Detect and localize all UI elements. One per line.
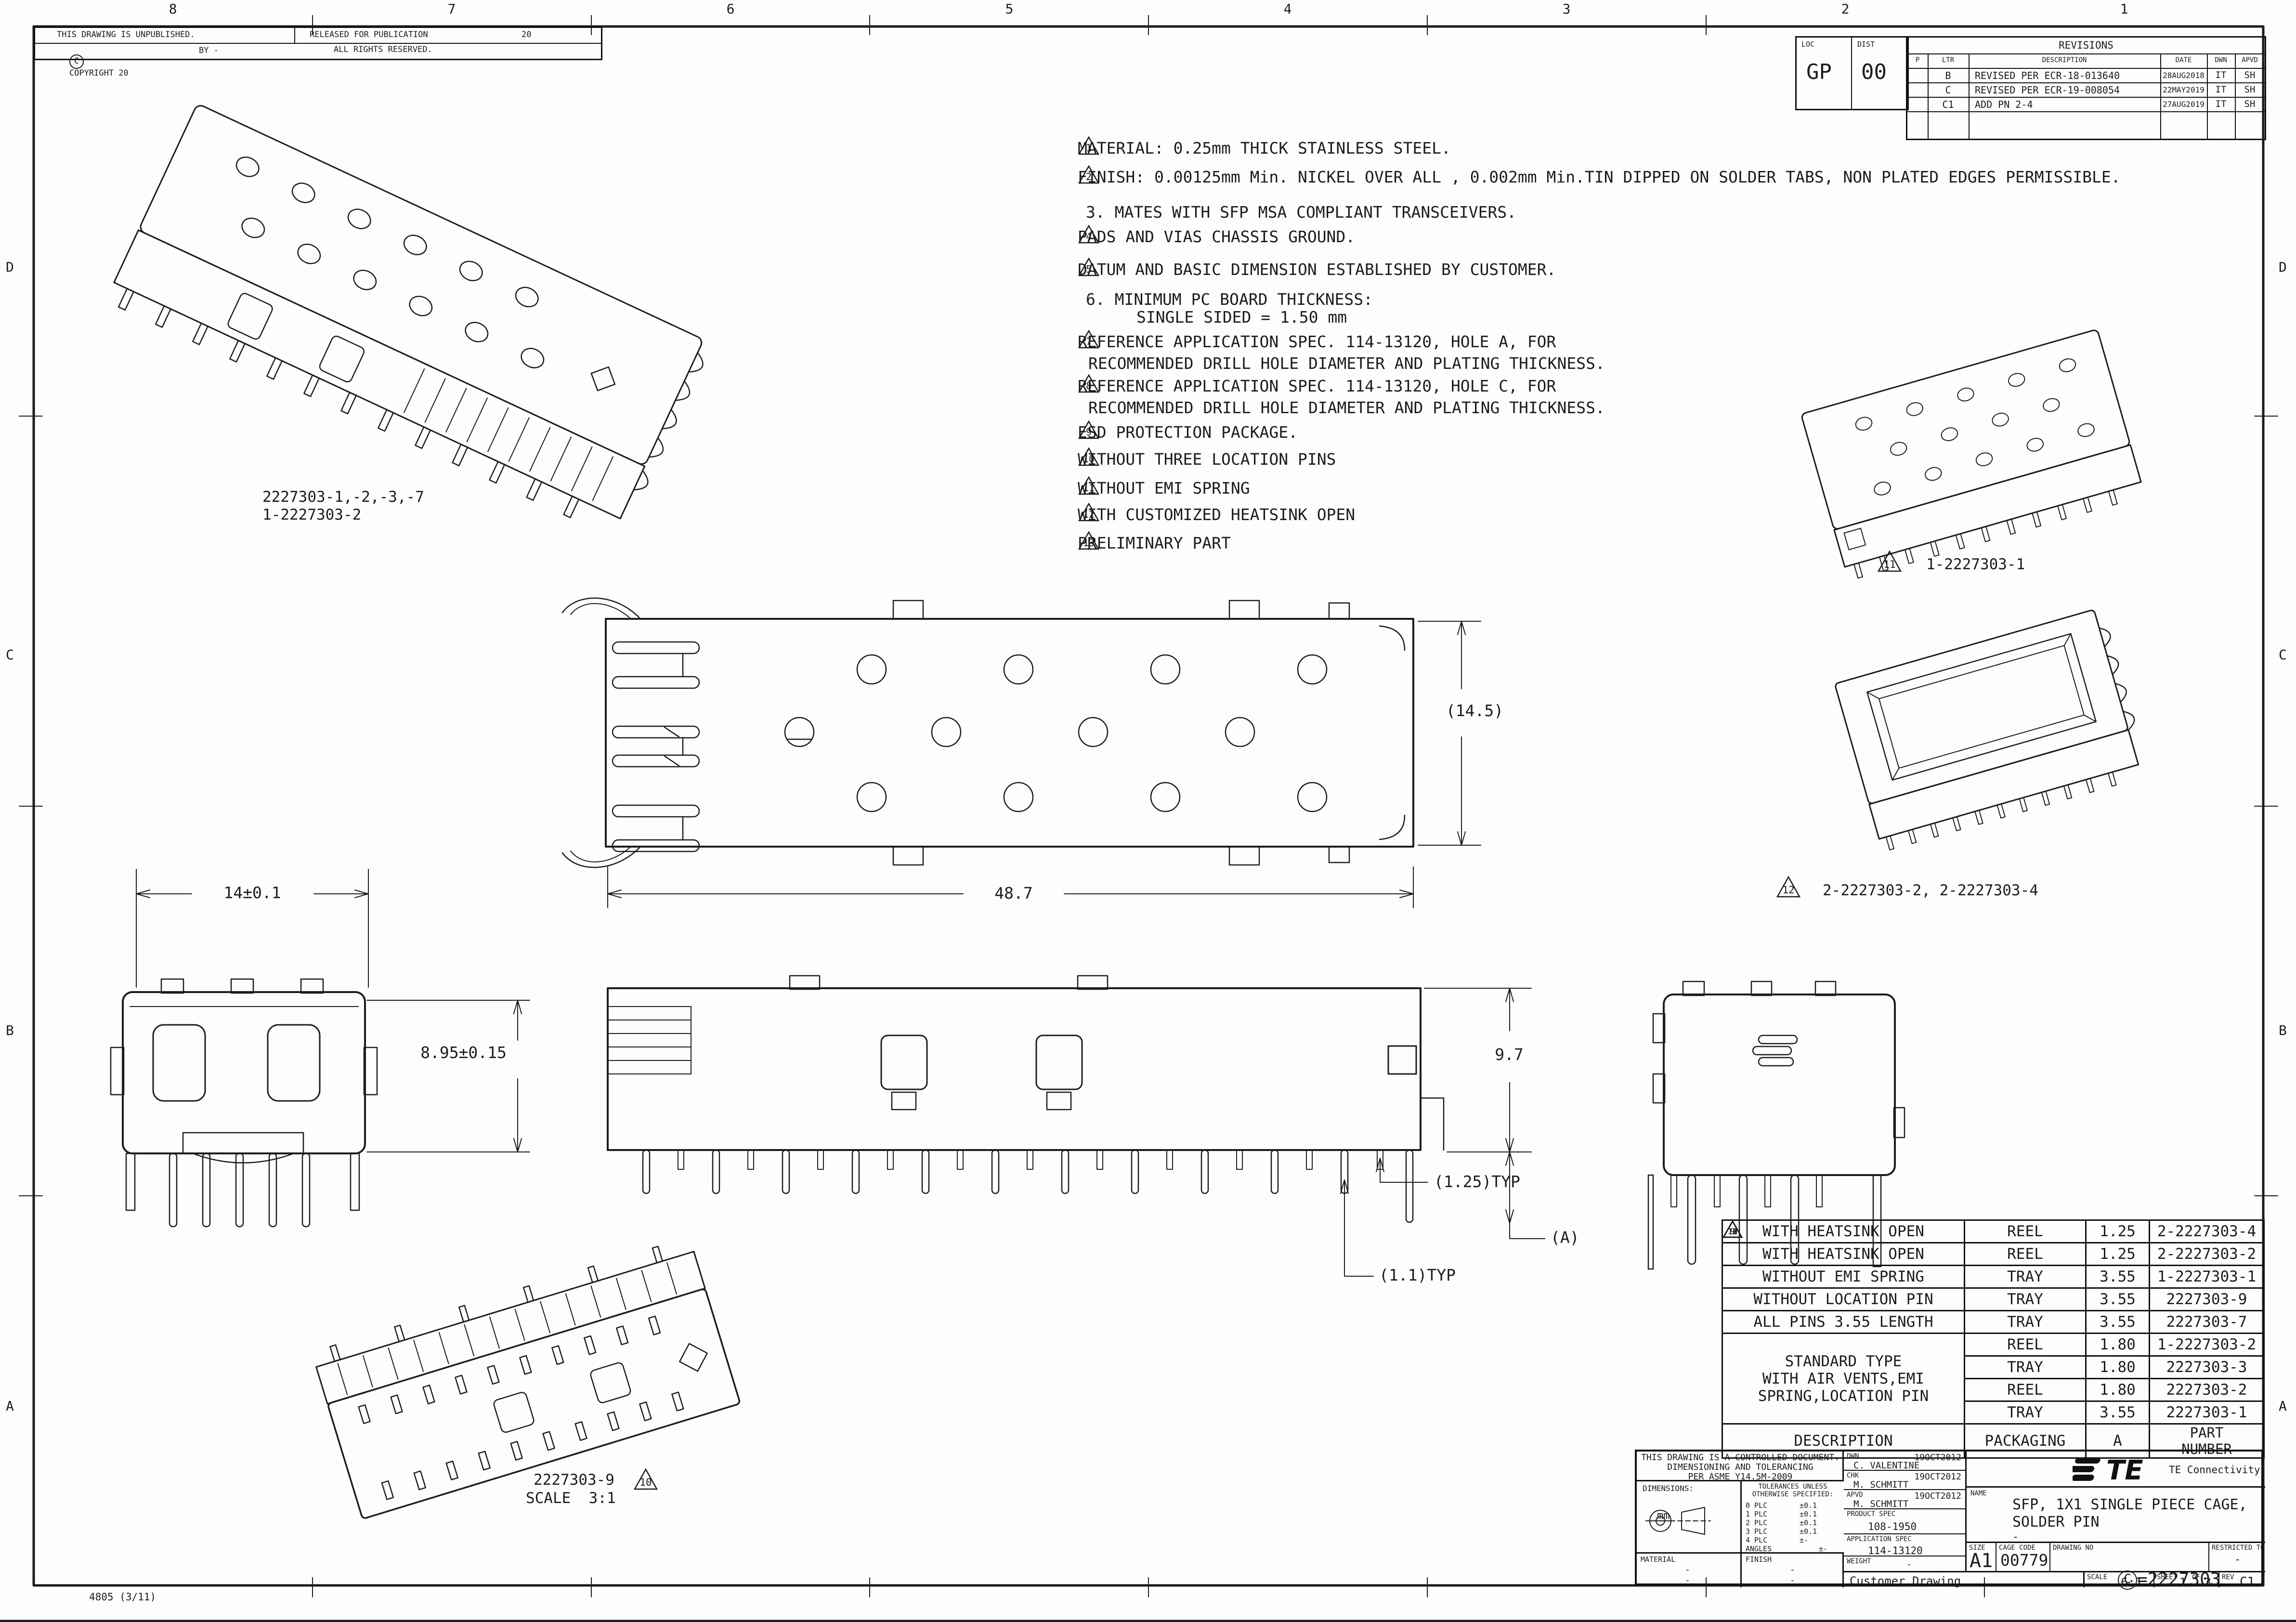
rev-row-apvd: SH	[2235, 85, 2265, 95]
part-number: 2-2227303-2	[2150, 1243, 2264, 1266]
zone-letter: D	[6, 260, 14, 275]
note-13: 13 PRELIMINARY PART	[1078, 531, 1231, 552]
rev-row-ltr: C1	[1928, 99, 1969, 110]
dim-side-height-text: 9.7	[1482, 1046, 1536, 1063]
dim-side-height-9-7	[1424, 988, 1531, 1152]
sheet-box: SHEET 1 OF 3	[2154, 1571, 2219, 1587]
parts-row: WITH HEATSINK OPEN 12REEL 1.25 2-2227303…	[1722, 1220, 2264, 1243]
part-number: 2227303-1	[2150, 1401, 2264, 1424]
part-number: 2227303-7	[2150, 1311, 2264, 1334]
part-dim-a: 1.80	[2086, 1379, 2150, 1401]
part-packaging: 10TRAY	[1965, 1288, 2086, 1311]
dim-depth-14-5	[1418, 621, 1481, 845]
note-8: 8 REFERENCE APPLICATION SPEC. 114-13120,…	[1078, 374, 1605, 417]
rev-row-apvd: SH	[2235, 70, 2265, 80]
flag-note-5-icon: 5	[1078, 257, 1100, 277]
unpublished-note: THIS DRAWING IS UNPUBLISHED.	[57, 30, 195, 39]
isometric-view-bottom-left	[312, 1237, 740, 1519]
flag-note-4-icon: 4	[1078, 224, 1100, 245]
note-2: 2 FINISH: 0.00125mm Min. NICKEL OVER ALL…	[1078, 165, 2121, 186]
svg-text:12: 12	[1782, 884, 1794, 896]
svg-text:11: 11	[1883, 559, 1895, 570]
svg-text:2: 2	[1086, 171, 1092, 183]
te-logo-marking	[1753, 1035, 1797, 1066]
dim-pin-pitch-text: (1.25)TYP	[1434, 1173, 1520, 1190]
zone-number: 7	[442, 2, 461, 17]
flag-note-13-icon: 13	[1078, 531, 1100, 551]
part-packaging: 9REEL	[1965, 1334, 2086, 1356]
rev-row-date: 27AUG2019	[2160, 100, 2207, 109]
part-dim-a: 3.55	[2086, 1288, 2150, 1311]
note-10: 10 WITHOUT THREE LOCATION PINS	[1078, 447, 1336, 469]
rev-row-ltr: C	[1928, 85, 1969, 95]
svg-text:1: 1	[1086, 142, 1092, 154]
dim-pin-length-text: (A)	[1551, 1229, 1579, 1246]
flag-icon: 9	[1722, 1220, 1743, 1239]
parts-row: STANDARD TYPE WITH AIR VENTS,EMI SPRING,…	[1722, 1334, 2264, 1356]
part-desc: WITHOUT LOCATION PIN	[1722, 1288, 1965, 1311]
rights-reserved: ALL RIGHTS RESERVED.	[334, 45, 432, 54]
flag-note-7-icon: 7	[1078, 329, 1100, 350]
drawing-sheet: 8 7 6 5 4 3 2 1 D C B A D C B A 4805 (3/…	[0, 0, 2296, 1622]
isometric-view-mid-right	[1835, 607, 2151, 852]
zone-number: 3	[1557, 2, 1576, 17]
part-packaging: REEL	[1965, 1379, 2086, 1401]
rev-row-dwn: IT	[2207, 99, 2235, 109]
label-bottom-left-scale: SCALE 3:1	[526, 1490, 616, 1506]
parts-row: WITHOUT EMI SPRING 11TRAY 3.55 1-2227303…	[1722, 1266, 2264, 1288]
zone-number: 1	[2114, 2, 2134, 17]
released-note: RELEASED FOR PUBLICATION	[310, 30, 428, 39]
revisions-table: REVISIONS P LTR DESCRIPTION DATE DWN APV…	[1906, 36, 2266, 140]
scale-box: SCALE 6:1	[2085, 1571, 2154, 1587]
note-12: 12 WITH CUSTOMIZED HEATSINK OPEN	[1078, 502, 1355, 524]
loc-value: GP	[1806, 61, 1832, 84]
part-desc: WITH HEATSINK OPEN	[1722, 1220, 1965, 1243]
label-main-iso-pn: 2227303-1,-2,-3,-7	[262, 489, 424, 505]
rev-row-desc: REVISED PER ECR-18-013640	[1975, 70, 2120, 81]
zone-letter: A	[2279, 1399, 2287, 1414]
dim-pin-pitch-leader	[1376, 1158, 1428, 1182]
dim-depth-text: (14.5)	[1423, 702, 1526, 719]
note-4: 4 PADS AND VIAS CHASSIS GROUND.	[1078, 224, 1355, 246]
svg-text:10: 10	[1083, 453, 1095, 465]
loc-label: LOC	[1801, 40, 1814, 49]
copyright-icon: C	[69, 54, 84, 69]
flag-note-11-icon: 11	[1078, 476, 1100, 496]
dim-length-text: 48.7	[970, 885, 1057, 902]
zone-number: 6	[721, 2, 740, 17]
label-top-right-pn: 1-2227303-1	[1926, 556, 2025, 573]
flag-note-8-icon: 8	[1078, 374, 1100, 394]
part-number: 1-2227303-2	[2150, 1334, 2264, 1356]
zone-letter: C	[6, 648, 14, 663]
part-dim-a: 3.55	[2086, 1311, 2150, 1334]
flag-mid-right-icon: 12	[1776, 876, 1801, 899]
rev-row-date: 22MAY2019	[2160, 86, 2207, 94]
brand-box: TE TE Connectivity	[1967, 1452, 2265, 1488]
part-number: 2-2227303-4	[2150, 1220, 2264, 1243]
cage-code-box: CAGE CODE 00779	[1996, 1543, 2050, 1571]
finish-box: FINISH - -	[1742, 1554, 1844, 1587]
zone-letter: B	[6, 1023, 14, 1038]
rev-row-desc: REVISED PER ECR-19-008054	[1975, 85, 2120, 95]
zone-letter: A	[6, 1399, 14, 1414]
units-value: mm	[1657, 1510, 1670, 1522]
part-dim-a: 3.55	[2086, 1401, 2150, 1424]
zone-number: 4	[1278, 2, 1297, 17]
part-number: 2227303-9	[2150, 1288, 2264, 1311]
te-logo-icon: TE	[2073, 1455, 2154, 1484]
flag-note-12-icon: 12	[1078, 502, 1100, 523]
part-packaging: 12REEL	[1965, 1243, 2086, 1266]
svg-text:7: 7	[1086, 336, 1092, 347]
rev-row-ltr: B	[1928, 70, 1969, 81]
note-1: 1 MATERIAL: 0.25mm THICK STAINLESS STEEL…	[1078, 136, 1451, 157]
dim-pin-length-A	[1506, 1152, 1545, 1239]
part-packaging: 12REEL	[1965, 1220, 2086, 1243]
flag-note-1-icon: 1	[1078, 136, 1100, 156]
zone-number: 5	[1000, 2, 1019, 17]
svg-text:5: 5	[1086, 263, 1092, 275]
name-box: NAME SFP, 1X1 SINGLE PIECE CAGE, SOLDER …	[1967, 1488, 2265, 1543]
revisions-title: REVISIONS	[1907, 40, 2265, 51]
part-packaging: 11TRAY	[1965, 1266, 2086, 1288]
zone-letter: C	[2279, 648, 2287, 663]
front-view	[111, 979, 377, 1227]
chk-box: CHK 19OCT2012 M. SCHMITT	[1844, 1471, 1967, 1490]
part-desc: ALL PINS 3.55 LENGTH	[1722, 1311, 1965, 1334]
note-6b: SINGLE SIDED = 1.50 mm	[1136, 305, 1347, 327]
copyright-text: COPYRIGHT 20	[69, 68, 129, 78]
rev-box: REV C1	[2219, 1571, 2265, 1587]
part-packaging: TRAY	[1965, 1401, 2086, 1424]
controlled-doc-box: THIS DRAWING IS A CONTROLLED DOCUMENT. D…	[1637, 1452, 1844, 1481]
parts-table: WITH HEATSINK OPEN 12REEL 1.25 2-2227303…	[1722, 1219, 2265, 1459]
material-box: MATERIAL - -	[1637, 1554, 1742, 1587]
dim-height-8-95	[367, 1000, 530, 1152]
dim-width-text: 14±0.1	[192, 884, 313, 902]
flag-bottom-left-icon: 10	[633, 1468, 658, 1491]
dim-height-text: 8.95±0.15	[404, 1044, 522, 1061]
part-desc-merged: STANDARD TYPE WITH AIR VENTS,EMI SPRING,…	[1722, 1334, 1965, 1424]
rev-row-dwn: IT	[2207, 70, 2235, 80]
note-11: 11 WITHOUT EMI SPRING	[1078, 476, 1250, 497]
part-dim-a: 1.25	[2086, 1243, 2150, 1266]
rev-col-date: DATE	[2160, 57, 2207, 64]
label-main-iso-pn2: 1-2227303-2	[262, 507, 361, 523]
rev-col-dwn: DWN	[2207, 57, 2235, 64]
part-desc: WITH HEATSINK OPEN	[1722, 1243, 1965, 1266]
part-desc: WITHOUT EMI SPRING	[1722, 1266, 1965, 1288]
dim-pin-dia-text: (1.1)TYP	[1379, 1267, 1456, 1284]
zone-letter: D	[2279, 260, 2287, 275]
svg-text:10: 10	[639, 1477, 652, 1488]
svg-text:TE: TE	[2106, 1455, 2143, 1484]
svg-text:9: 9	[1730, 1227, 1735, 1237]
rev-col-p: P	[1907, 57, 1928, 64]
side-view-long	[608, 976, 1444, 1222]
dim-pin-dia-leader	[1341, 1180, 1373, 1276]
part-number: 2227303-2	[2150, 1379, 2264, 1401]
restricted-box: RESTRICTED TO -	[2209, 1543, 2265, 1571]
part-packaging: 13TRAY	[1965, 1311, 2086, 1334]
part-number: 2227303-3	[2150, 1356, 2264, 1379]
zone-number: 8	[163, 2, 183, 17]
apvd-box: APVD 19OCT2012 M. SCHMITT	[1844, 1490, 1967, 1509]
note-9: 9 ESD PROTECTION PACKAGE.	[1078, 420, 1298, 442]
title-block: THIS DRAWING IS A CONTROLLED DOCUMENT. D…	[1635, 1450, 2263, 1585]
drawing-no-box: DRAWING NO C=2227303	[2050, 1543, 2209, 1571]
copyright-by: BY -	[199, 46, 219, 55]
rev-col-apvd: APVD	[2235, 57, 2265, 64]
svg-text:12: 12	[1083, 509, 1095, 520]
zone-number: 2	[1836, 2, 1855, 17]
dist-value: 00	[1861, 61, 1887, 84]
plan-view	[562, 598, 1413, 867]
loc-dist-box: LOC DIST GP 00	[1795, 36, 1909, 110]
flag-top-right-icon: 11	[1877, 550, 1902, 573]
isometric-view-top-right	[1801, 329, 2145, 581]
part-packaging: TRAY	[1965, 1356, 2086, 1379]
dist-label: DIST	[1857, 40, 1875, 49]
part-dim-a: 1.80	[2086, 1356, 2150, 1379]
svg-text:9: 9	[1086, 426, 1092, 438]
flag-note-10-icon: 10	[1078, 447, 1100, 467]
note-5: 5 DATUM AND BASIC DIMENSION ESTABLISHED …	[1078, 257, 1556, 279]
parts-row: ALL PINS 3.55 LENGTH 13TRAY 3.55 2227303…	[1722, 1311, 2264, 1334]
parts-row: WITHOUT LOCATION PIN 10TRAY 3.55 2227303…	[1722, 1288, 2264, 1311]
part-dim-a: 1.80	[2086, 1334, 2150, 1356]
size-box: SIZE A1	[1967, 1543, 1996, 1571]
part-dim-a: 3.55	[2086, 1266, 2150, 1288]
isometric-view-main	[105, 104, 713, 541]
label-mid-right-pn: 2-2227303-2, 2-2227303-4	[1823, 882, 2038, 899]
rev-row-apvd: SH	[2235, 99, 2265, 109]
rev-col-desc: DESCRIPTION	[1969, 57, 2160, 64]
svg-text:8: 8	[1086, 380, 1092, 392]
rev-row-dwn: IT	[2207, 85, 2235, 95]
svg-text:13: 13	[1083, 537, 1095, 549]
brand-text: TE Connectivity	[2169, 1464, 2260, 1476]
svg-text:11: 11	[1083, 482, 1095, 494]
header-strip: THIS DRAWING IS UNPUBLISHED. RELEASED FO…	[34, 26, 602, 60]
product-spec-box: PRODUCT SPEC 108-1950	[1844, 1509, 1967, 1534]
doc-type-box: Customer Drawing	[1844, 1571, 2085, 1587]
flag-note-2-icon: 2	[1078, 165, 1100, 185]
application-spec-box: APPLICATION SPEC 114-13120	[1844, 1534, 1967, 1557]
tolerances-box: TOLERANCES UNLESS OTHERWISE SPECIFIED: 0…	[1742, 1481, 1844, 1554]
flag-note-9-icon: 9	[1078, 420, 1100, 440]
zone-letter: B	[2279, 1023, 2287, 1038]
rev-row-date: 28AUG2018	[2160, 71, 2207, 80]
rev-col-ltr: LTR	[1928, 57, 1969, 64]
note-3: 3. MATES WITH SFP MSA COMPLIANT TRANSCEI…	[1086, 200, 1516, 222]
parts-row: WITH HEATSINK OPEN 12REEL 1.25 2-2227303…	[1722, 1243, 2264, 1266]
label-bottom-left-pn: 2227303-9	[534, 1472, 614, 1488]
note-7: 7 REFERENCE APPLICATION SPEC. 114-13120,…	[1078, 329, 1605, 373]
dwn-box: DWN 19OCT2012 C. VALENTINE	[1844, 1452, 1967, 1471]
form-stamp: 4805 (3/11)	[89, 1592, 156, 1603]
part-number: 1-2227303-1	[2150, 1266, 2264, 1288]
part-dim-a: 1.25	[2086, 1220, 2150, 1243]
weight-box: WEIGHT -	[1844, 1557, 1967, 1571]
svg-text:4: 4	[1086, 231, 1092, 242]
rev-row-desc: ADD PN 2-4	[1975, 99, 2033, 110]
released-year: 20	[522, 30, 531, 39]
dimensions-box: DIMENSIONS: mm	[1637, 1481, 1742, 1554]
